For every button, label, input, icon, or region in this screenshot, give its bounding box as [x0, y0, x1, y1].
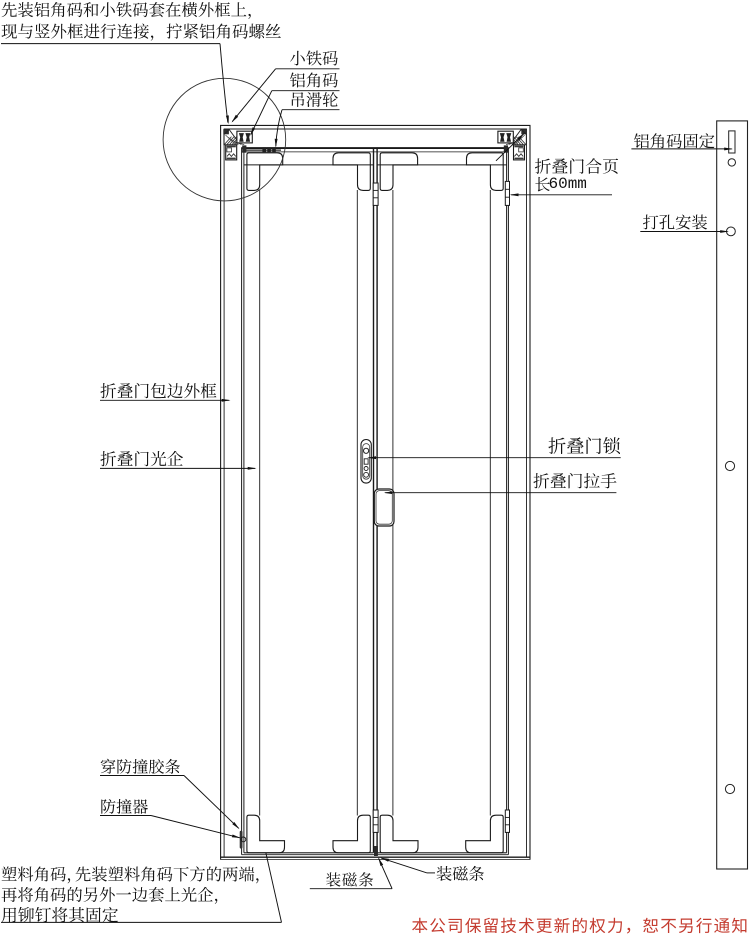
- svg-text:60mm: 60mm: [549, 175, 587, 193]
